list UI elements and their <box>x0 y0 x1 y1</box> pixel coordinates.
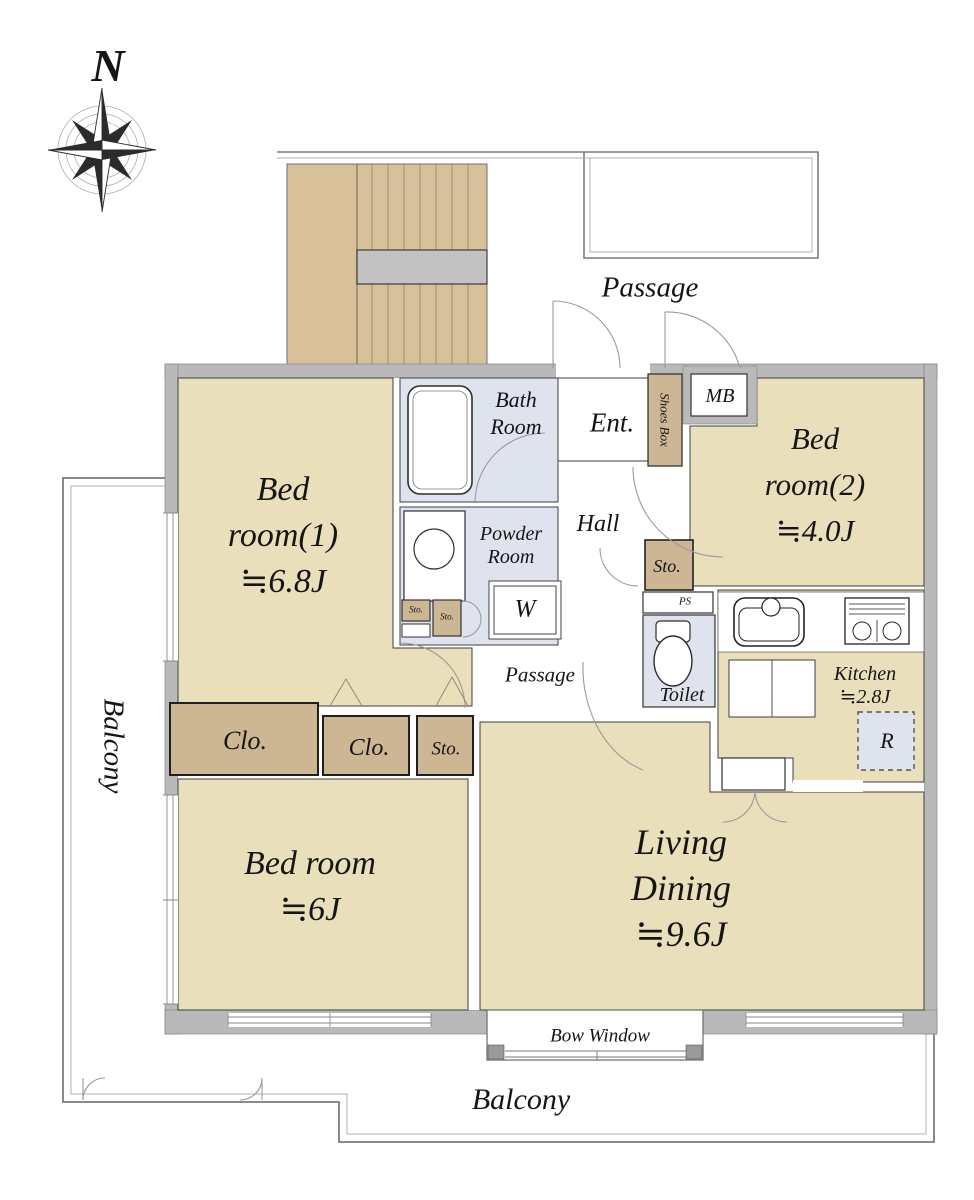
bedroom2-size: ≒4.0J <box>765 508 865 554</box>
closet-large-label: Clo. <box>223 728 267 754</box>
compass-rose <box>48 88 156 212</box>
bedroom1-name-1: Bed <box>228 467 338 513</box>
kitchen-name: Kitchen <box>834 663 896 686</box>
kitchen-label: Kitchen ≒2.8J <box>834 663 896 709</box>
kitchen-hatch-counter <box>722 758 785 790</box>
refrigerator-label: R <box>880 730 893 752</box>
balcony-partition-1 <box>83 1078 105 1100</box>
pipe-space-label: PS <box>679 597 691 608</box>
balcony-bottom-label: Balcony <box>472 1085 570 1115</box>
entrance-door-swing <box>553 301 620 368</box>
bow-window-label: Bow Window <box>550 1027 650 1046</box>
entrance-opening <box>556 362 650 379</box>
bedroom1-label: Bed room(1) ≒6.8J <box>228 467 338 605</box>
passage-common-label: Passage <box>602 274 699 303</box>
passage-door-swing <box>665 312 740 368</box>
bedroom3-label: Bed room ≒6J <box>244 841 376 933</box>
wall-right <box>924 364 937 1034</box>
wall-top <box>165 364 937 378</box>
entrance-label: Ent. <box>590 410 634 437</box>
floor-plan: N Passage Bed room(1) ≒6.8J Bed room(2) … <box>0 0 974 1200</box>
shoes-box-label: Shoes Box <box>659 393 672 447</box>
bathtub <box>408 386 472 494</box>
living-dining-label: Living Dining ≒9.6J <box>631 819 731 957</box>
hall-label: Hall <box>577 512 620 536</box>
bath-label: Bath Room <box>490 386 541 440</box>
window-bottom-living <box>746 1013 903 1027</box>
powder-name-1: Powder <box>480 523 542 546</box>
storage-small-open <box>402 624 430 637</box>
washer-label: W <box>515 597 536 622</box>
bedroom3-size: ≒6J <box>244 887 376 933</box>
meter-box-label: MB <box>706 386 735 406</box>
window-bottom-bedroom3 <box>228 1013 431 1027</box>
kitchen-faucet <box>762 598 780 616</box>
window-left-bedroom1 <box>163 513 178 661</box>
staircase <box>287 164 487 368</box>
bedroom2-name-1: Bed <box>765 416 865 462</box>
kitchen-stove <box>845 598 909 644</box>
balcony-left-label: Balcony <box>99 698 128 793</box>
bedroom2-name-2: room(2) <box>765 462 865 508</box>
storage-hall-label: Sto. <box>653 557 681 575</box>
vanity-sink <box>414 529 454 569</box>
stair-landing <box>357 250 487 284</box>
toilet-label: Toilet <box>660 685 705 705</box>
kitchen-opening <box>793 780 863 792</box>
storage-small-1-label: Sto. <box>409 606 423 615</box>
window-left-bedroom3 <box>163 795 178 1004</box>
toilet-bowl <box>654 636 692 686</box>
storage-small-2-label: Sto. <box>440 613 454 622</box>
powder-name-2: Room <box>480 546 542 569</box>
compass-north-label: N <box>91 43 124 89</box>
bath-name-1: Bath <box>490 386 541 413</box>
bedroom2-label: Bed room(2) ≒4.0J <box>765 416 865 554</box>
bedroom1-name-2: room(1) <box>228 513 338 559</box>
balcony-partition-2 <box>240 1078 262 1100</box>
inner-passage-label: Passage <box>505 665 575 686</box>
living-name-1: Living <box>631 819 731 865</box>
closet-small-label: Clo. <box>349 736 390 760</box>
living-name-2: Dining <box>631 865 731 911</box>
powder-label: Powder Room <box>480 523 542 569</box>
floor-plan-geometry <box>0 0 974 1200</box>
living-size: ≒9.6J <box>631 911 731 957</box>
bedroom1-size: ≒6.8J <box>228 559 338 605</box>
bedroom3-name: Bed room <box>244 841 376 887</box>
storage-row-label: Sto. <box>431 740 460 759</box>
kitchen-size: ≒2.8J <box>834 686 896 709</box>
bath-name-2: Room <box>490 413 541 440</box>
